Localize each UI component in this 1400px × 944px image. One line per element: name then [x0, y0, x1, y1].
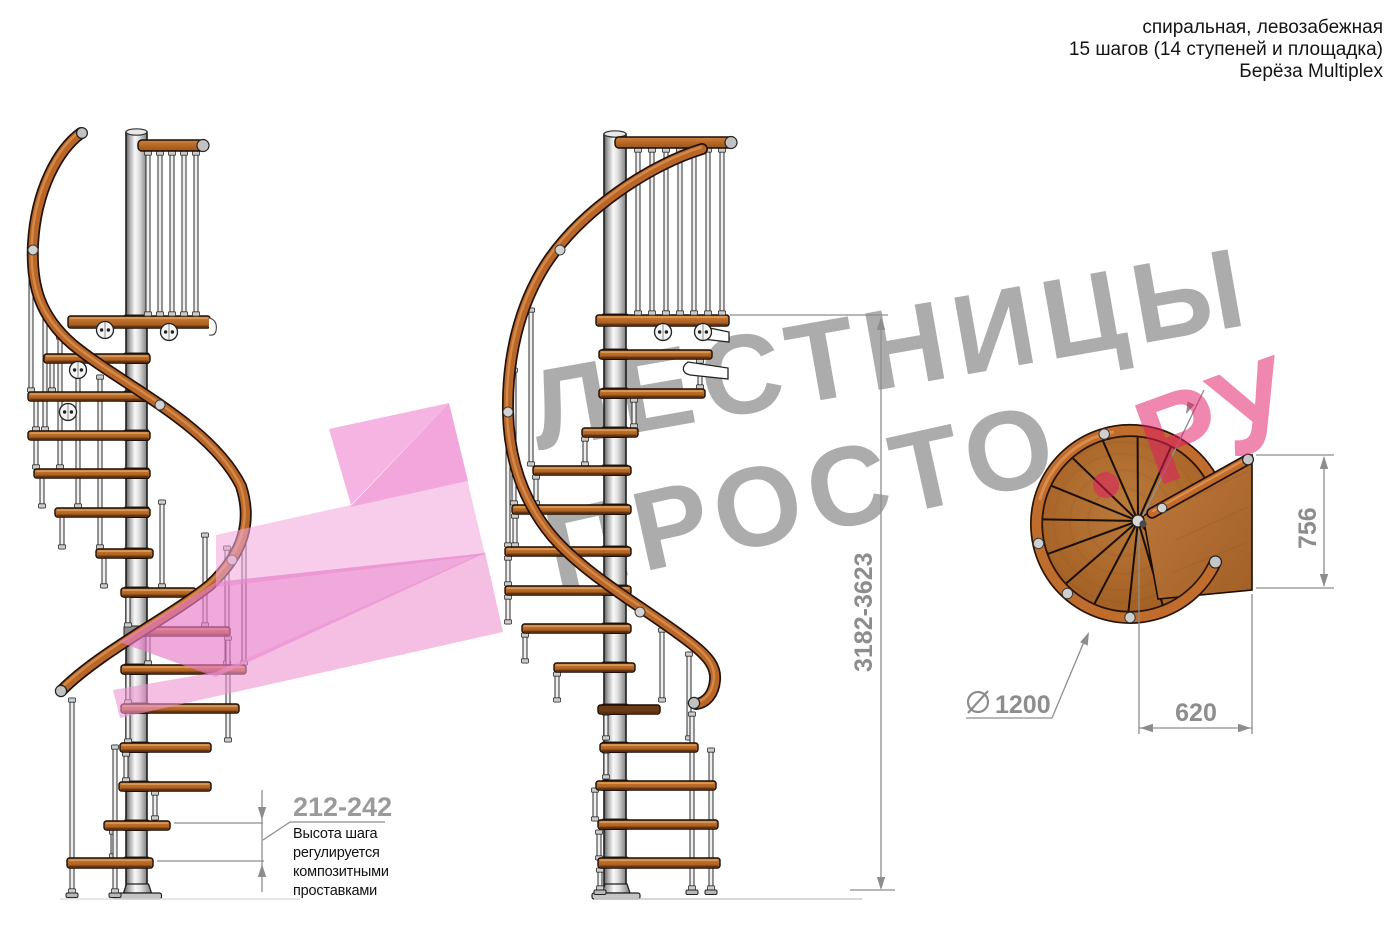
svg-text:спиральная, левозабежная: спиральная, левозабежная — [1142, 17, 1383, 38]
svg-text:проставками: проставками — [293, 883, 377, 899]
svg-text:756: 756 — [1294, 507, 1322, 549]
svg-text:композитными: композитными — [293, 864, 389, 880]
svg-text:3182-3623: 3182-3623 — [850, 552, 878, 672]
svg-text:212-242: 212-242 — [293, 792, 392, 822]
svg-text:Берёза Multiplex: Берёза Multiplex — [1239, 61, 1383, 82]
svg-text:620: 620 — [1175, 699, 1217, 727]
svg-text:регулируется: регулируется — [293, 845, 380, 861]
svg-text:1200: 1200 — [995, 691, 1051, 719]
svg-text:Высота шага: Высота шага — [293, 826, 378, 842]
svg-text:15 шагов (14 ступеней и площад: 15 шагов (14 ступеней и площадка) — [1069, 39, 1383, 60]
